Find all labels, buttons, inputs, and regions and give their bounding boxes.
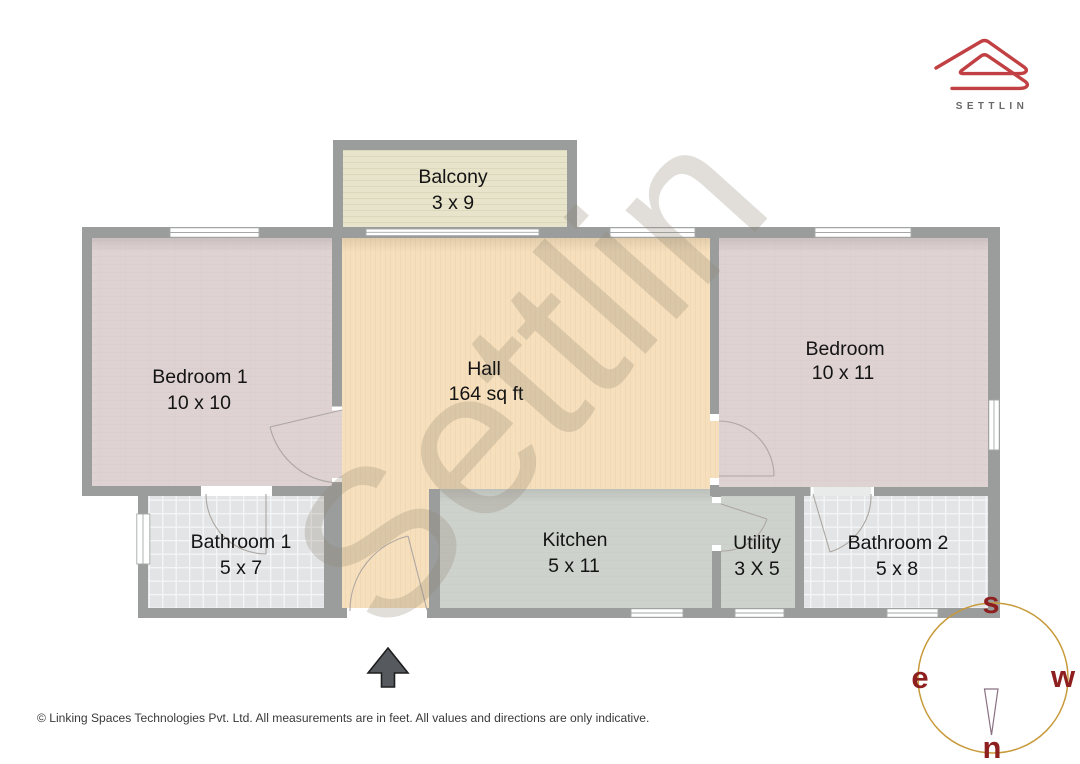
svg-text:w: w <box>1050 659 1076 694</box>
svg-text:Bathroom 1: Bathroom 1 <box>191 531 292 553</box>
svg-text:e: e <box>911 660 928 695</box>
svg-text:Utility: Utility <box>733 532 781 554</box>
svg-text:n: n <box>983 730 1002 764</box>
svg-text:Bathroom 2: Bathroom 2 <box>848 532 949 554</box>
svg-text:Bedroom 1: Bedroom 1 <box>152 366 247 388</box>
svg-text:Balcony: Balcony <box>418 166 488 188</box>
svg-text:© Linking Spaces Technologies: © Linking Spaces Technologies Pvt. Ltd. … <box>37 711 649 725</box>
svg-text:3 X 5: 3 X 5 <box>734 558 780 580</box>
svg-text:5 x 8: 5 x 8 <box>876 558 918 580</box>
svg-text:s: s <box>982 585 999 620</box>
svg-text:Kitchen: Kitchen <box>542 529 607 551</box>
svg-text:3 x 9: 3 x 9 <box>432 192 474 214</box>
svg-text:5 x 11: 5 x 11 <box>548 555 600 577</box>
svg-text:Hall: Hall <box>467 358 501 380</box>
svg-text:5 x 7: 5 x 7 <box>220 557 262 579</box>
svg-text:164 sq ft: 164 sq ft <box>449 383 524 405</box>
svg-text:10 x 11: 10 x 11 <box>812 362 875 384</box>
svg-text:Bedroom: Bedroom <box>805 338 884 360</box>
svg-text:10 x 10: 10 x 10 <box>167 392 231 414</box>
svg-text:SETTLIN: SETTLIN <box>956 101 1028 112</box>
